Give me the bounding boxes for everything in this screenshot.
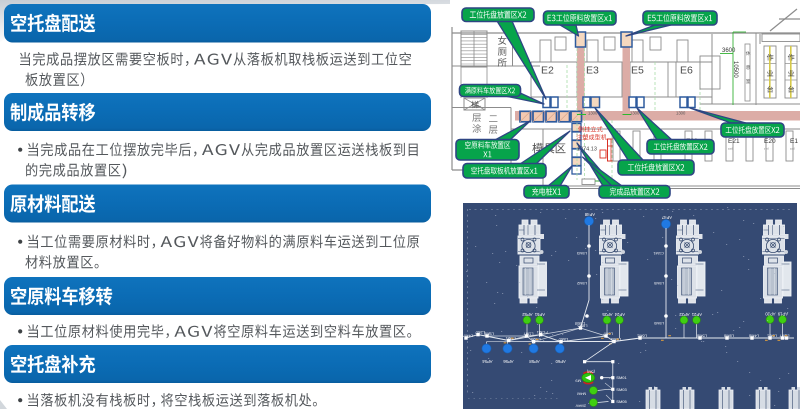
svg-text:2M4V: 2M4V: [575, 404, 586, 409]
svg-text:E21: E21: [728, 138, 740, 145]
svg-text:C1M1: C1M1: [653, 251, 664, 256]
svg-text:L5M8: L5M8: [696, 334, 707, 339]
svg-text:L2M7: L2M7: [474, 330, 485, 335]
svg-text:M4M: M4M: [577, 392, 586, 397]
svg-text:E5: E5: [631, 65, 644, 77]
svg-text:AP47: AP47: [661, 215, 672, 220]
svg-text:L4M6: L4M6: [530, 337, 541, 342]
svg-text:FCM1: FCM1: [536, 330, 548, 335]
svg-text:1300: 1300: [676, 111, 686, 116]
svg-text:AP19: AP19: [777, 312, 788, 317]
svg-text:E1: E1: [790, 138, 798, 145]
svg-text:L4M1: L4M1: [505, 336, 516, 341]
svg-text:E3: E3: [586, 65, 599, 77]
svg-text:AP56: AP56: [503, 359, 514, 364]
svg-text:AP60: AP60: [555, 359, 566, 364]
svg-text:L5M3: L5M3: [610, 337, 621, 342]
svg-text:L5M3: L5M3: [576, 251, 587, 256]
svg-text:E6: E6: [680, 65, 693, 77]
svg-text:3600: 3600: [722, 48, 736, 54]
svg-text:L8M8: L8M8: [723, 334, 734, 339]
svg-text:L5M5: L5M5: [653, 281, 664, 286]
svg-text:SM01: SM01: [616, 375, 627, 380]
svg-text:AP48: AP48: [584, 212, 595, 217]
svg-text:SM05: SM05: [616, 399, 627, 404]
svg-text:AP58: AP58: [529, 359, 540, 364]
svg-text:L5M2: L5M2: [576, 281, 587, 286]
svg-text:M9: M9: [575, 379, 581, 384]
svg-text:(5M): (5M): [586, 370, 595, 375]
svg-text:SM03: SM03: [616, 387, 627, 392]
svg-text:L5M1: L5M1: [766, 334, 777, 339]
svg-text:E2: E2: [541, 65, 554, 77]
svg-text:AP20: AP20: [765, 312, 776, 317]
svg-text:AP54: AP54: [482, 359, 493, 364]
svg-text:L1M7: L1M7: [779, 334, 790, 339]
svg-text:AP52: AP52: [522, 312, 533, 317]
svg-text:L1M7: L1M7: [523, 332, 534, 337]
svg-text:L5M9: L5M9: [574, 321, 585, 326]
svg-text:L6M1: L6M1: [636, 334, 647, 339]
svg-text:AP25: AP25: [602, 312, 613, 317]
svg-text:AP22: AP22: [679, 312, 690, 317]
svg-text:L8M7: L8M7: [557, 337, 568, 342]
svg-text:10500: 10500: [732, 61, 738, 78]
svg-text:L4M7: L4M7: [462, 334, 473, 339]
svg-text:L9M8: L9M8: [483, 332, 494, 337]
svg-text:AP51: AP51: [534, 312, 545, 317]
svg-text:L6M7: L6M7: [602, 332, 613, 337]
svg-text:L4M8: L4M8: [748, 334, 759, 339]
svg-text:E20: E20: [764, 138, 776, 145]
svg-text:AP21: AP21: [691, 312, 702, 317]
svg-text:L5M0: L5M0: [653, 321, 664, 326]
